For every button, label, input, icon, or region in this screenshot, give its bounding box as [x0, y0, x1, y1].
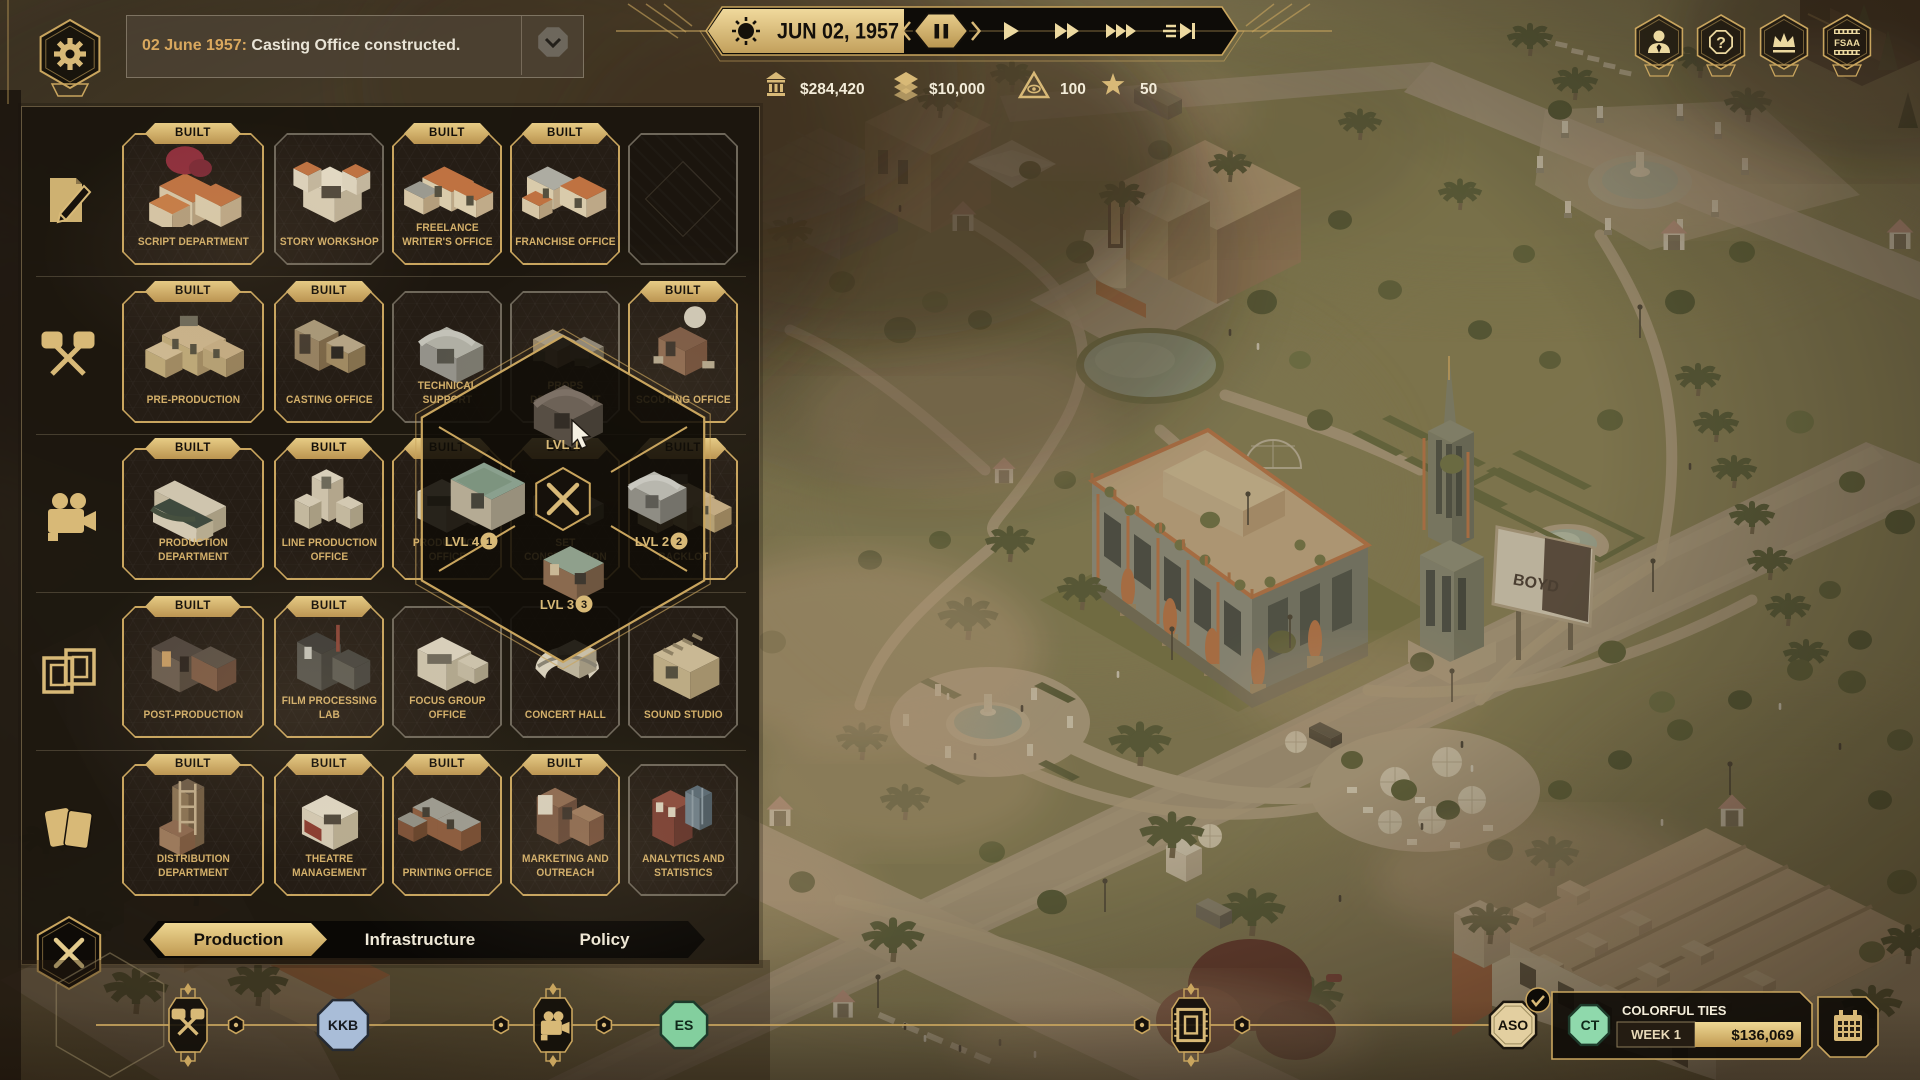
svg-text:50: 50: [1140, 81, 1157, 98]
svg-text:?: ?: [1716, 35, 1726, 52]
svg-text:$10,000: $10,000: [929, 81, 985, 98]
svg-text:ES: ES: [675, 1017, 694, 1033]
svg-text:COLORFUL TIES: COLORFUL TIES: [1622, 1003, 1727, 1018]
svg-text:100: 100: [1060, 81, 1086, 98]
svg-text:ASO: ASO: [1498, 1017, 1528, 1033]
svg-text:FSAA: FSAA: [1834, 38, 1860, 49]
svg-text:$284,420: $284,420: [800, 81, 865, 98]
svg-text:WEEK 1: WEEK 1: [1631, 1027, 1681, 1042]
svg-text:$136,069: $136,069: [1731, 1027, 1794, 1044]
svg-text:KKB: KKB: [328, 1017, 358, 1033]
svg-text:JUN 02, 1957: JUN 02, 1957: [777, 19, 899, 44]
svg-text:CT: CT: [1581, 1017, 1600, 1033]
